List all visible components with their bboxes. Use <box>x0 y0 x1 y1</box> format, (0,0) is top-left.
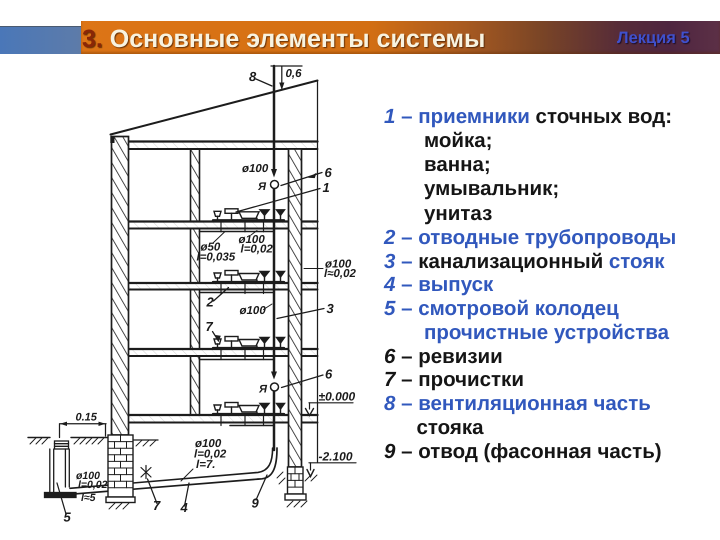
svg-text:l=7.: l=7. <box>196 459 216 471</box>
svg-text:l=0,035: l=0,035 <box>197 252 236 264</box>
svg-text:9: 9 <box>252 496 260 511</box>
svg-text:±0.000: ±0.000 <box>319 390 356 404</box>
svg-text:6: 6 <box>325 367 333 382</box>
svg-text:l≈5: l≈5 <box>81 492 96 504</box>
svg-text:l≈0,02: l≈0,02 <box>324 268 356 280</box>
svg-text:3: 3 <box>327 301 335 316</box>
svg-text:0.15: 0.15 <box>76 412 98 424</box>
svg-text:l=0,02: l=0,02 <box>241 244 274 256</box>
svg-text:2: 2 <box>206 295 215 310</box>
svg-text:4: 4 <box>180 500 189 515</box>
svg-text:0,6: 0,6 <box>286 68 303 80</box>
svg-text:7: 7 <box>153 498 161 513</box>
svg-text:l=0,02: l=0,02 <box>78 479 108 491</box>
svg-text:-2.100: -2.100 <box>319 450 353 464</box>
svg-text:ø100: ø100 <box>240 305 267 317</box>
svg-text:Я: Я <box>257 181 267 193</box>
svg-text:1: 1 <box>323 180 330 195</box>
svg-text:8: 8 <box>249 69 257 84</box>
svg-text:ø100: ø100 <box>242 163 269 175</box>
svg-text:6: 6 <box>325 165 333 180</box>
svg-text:Я: Я <box>258 384 268 396</box>
